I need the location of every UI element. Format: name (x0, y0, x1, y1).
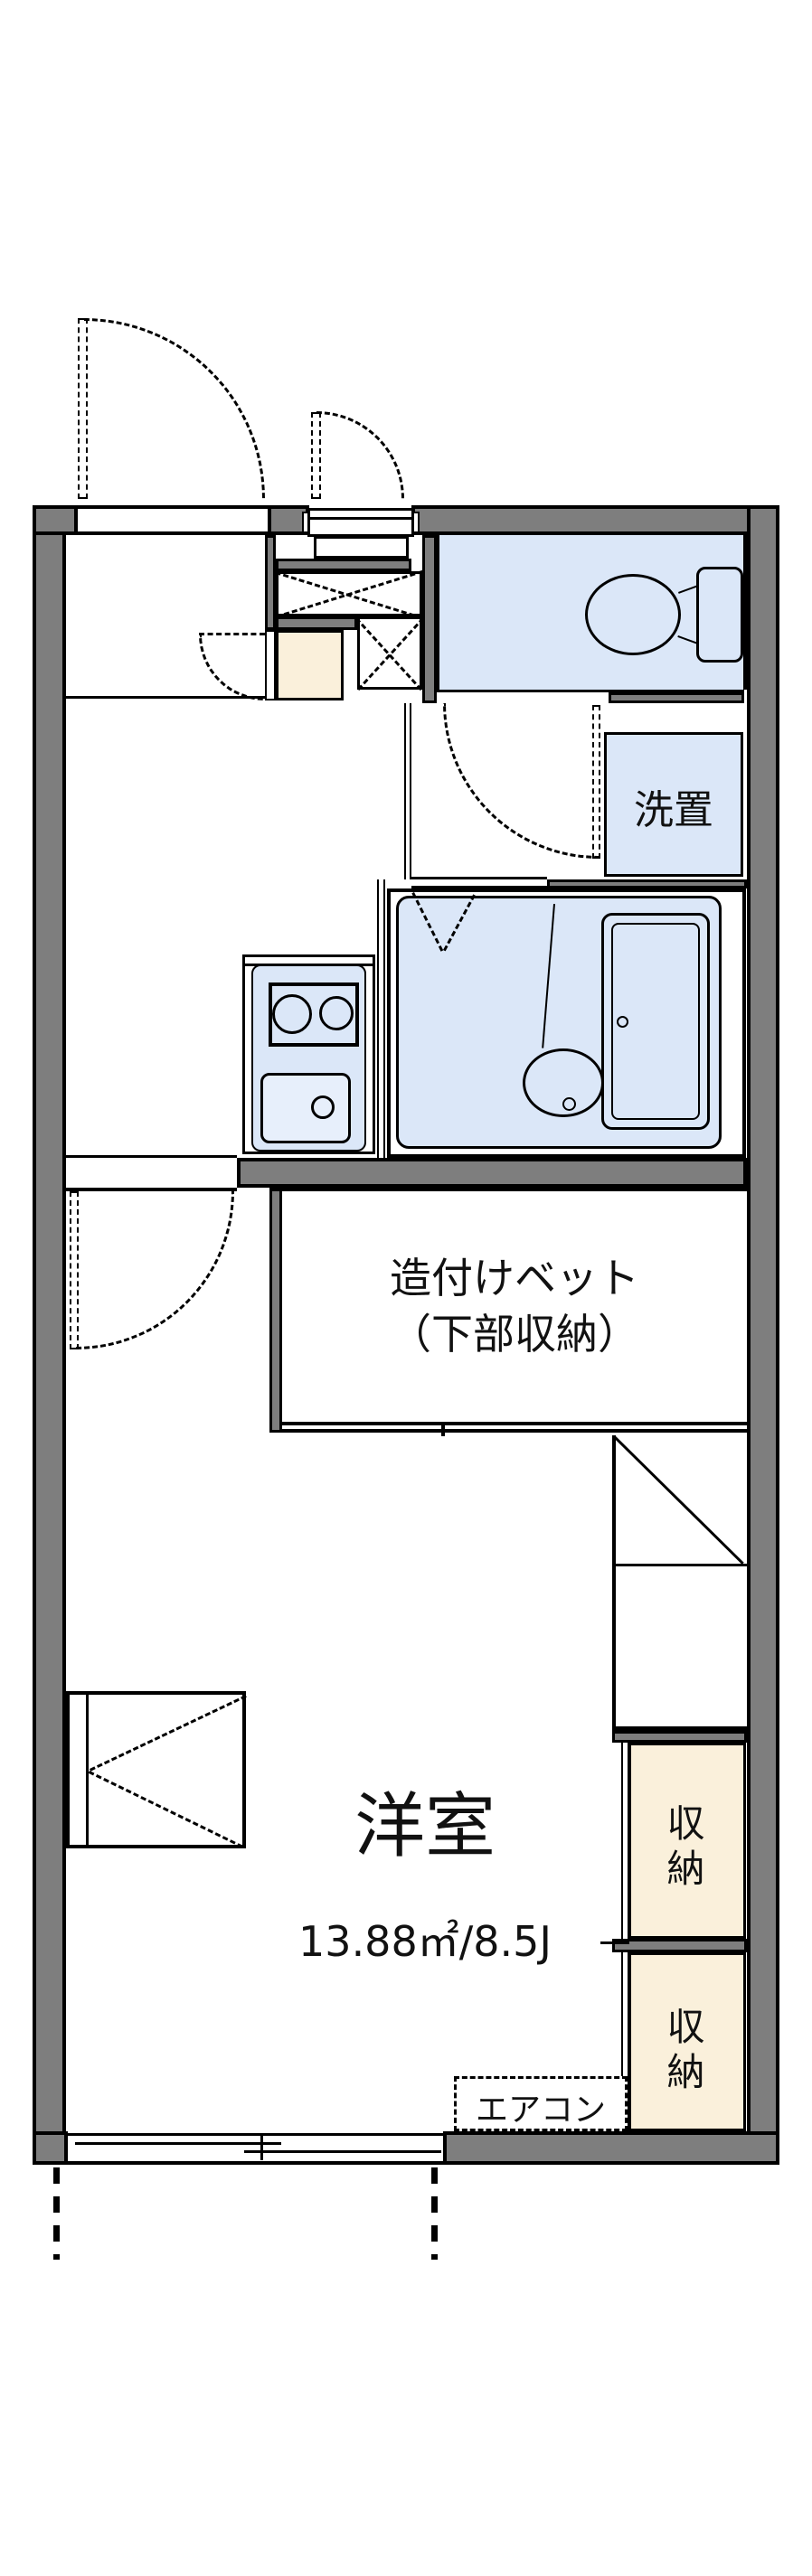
wall-under-porch (276, 559, 411, 571)
wall-kitchen-bath-double (377, 879, 385, 1160)
corridor-boundary-line (66, 696, 265, 699)
wall-genkan-step (276, 616, 357, 630)
window-bottom-sash-2 (244, 2150, 441, 2153)
room-size-label: 13.88㎡/8.5J (226, 1909, 624, 1969)
bedroom-door-swing[interactable] (76, 1191, 234, 1349)
balcony-dash-right (431, 2167, 438, 2260)
bathtub-drain (617, 1016, 628, 1028)
wall-toilet-bottom (609, 692, 744, 703)
door-swing-large[interactable] (84, 318, 265, 499)
toilet-tank (696, 567, 743, 663)
closet-upper-label: 収納 (656, 1776, 711, 1921)
wall-right (747, 505, 779, 2165)
window-bottom-sash-1 (75, 2142, 281, 2145)
entrance-door[interactable] (307, 508, 414, 537)
bay-window-inner-line (86, 1691, 89, 1848)
shoe-cabinet (276, 630, 344, 700)
wall-bath-top (547, 879, 747, 888)
sink-drain (311, 1095, 335, 1119)
bed-box-bottom-line-2 (282, 1429, 747, 1433)
entrance-porch-step (314, 536, 409, 559)
toilet-bowl[interactable] (585, 574, 681, 655)
shoe-cabinet-door[interactable] (265, 630, 276, 700)
bed-label-line1: 造付けベット (282, 1246, 747, 1305)
bed-box-top-line (269, 1188, 747, 1191)
wall-kitchen-bed-band (237, 1158, 747, 1188)
entrance-door-tab-right (412, 512, 420, 533)
entrance-door-slab-line (307, 517, 414, 520)
stove-burner-right (319, 996, 354, 1030)
bath-door-opening[interactable] (411, 877, 547, 888)
wall-corridor-double (404, 703, 411, 879)
wall-genkan-right-pier (422, 535, 437, 703)
shoe-door-swing-arc (199, 635, 265, 700)
door-swing-entrance[interactable] (316, 411, 404, 499)
washing-machine-label: 洗置 (604, 777, 743, 835)
window-bottom (68, 2133, 443, 2165)
balcony-dash-left (53, 2167, 60, 2260)
wall-bottom-left (33, 2131, 68, 2165)
wall-bed-left (269, 1189, 282, 1433)
fridge-space-bottom-line (612, 1564, 747, 1566)
column-left-line (612, 1435, 616, 1731)
fridge-space-diagonal (614, 1436, 744, 1565)
bed-label-line2: （下部収納） (282, 1302, 747, 1361)
washroom-door-swing[interactable] (443, 703, 599, 859)
floor-plan: 洗置 造付けベット （下部収納） 収納 収納 エアコン (0, 0, 812, 2576)
wash-basin-drain (562, 1097, 576, 1111)
closet-lower-label: 収納 (656, 1979, 711, 2124)
stove-burner-left (272, 994, 312, 1034)
entrance-door-tab-left (302, 512, 309, 533)
room-name-label: 洋室 (226, 1770, 624, 1871)
aircon-label: エアコン (454, 2083, 628, 2130)
bed-box-bottom-line-1 (282, 1422, 747, 1425)
kitchen-sink (260, 1073, 351, 1143)
wall-closet-top-band (612, 1731, 747, 1743)
wall-genkan-left (265, 535, 276, 630)
bed-box-bottom-tick (441, 1422, 445, 1436)
kitchen-floor-line (66, 1155, 237, 1158)
wall-top-corner (33, 505, 78, 535)
window-top (78, 505, 268, 535)
window-bottom-meet-tick (260, 2135, 263, 2160)
wall-left (33, 505, 66, 2165)
wall-bottom-right (443, 2131, 779, 2165)
wall-closet-divider (612, 1939, 747, 1952)
wall-top-right (411, 505, 779, 535)
